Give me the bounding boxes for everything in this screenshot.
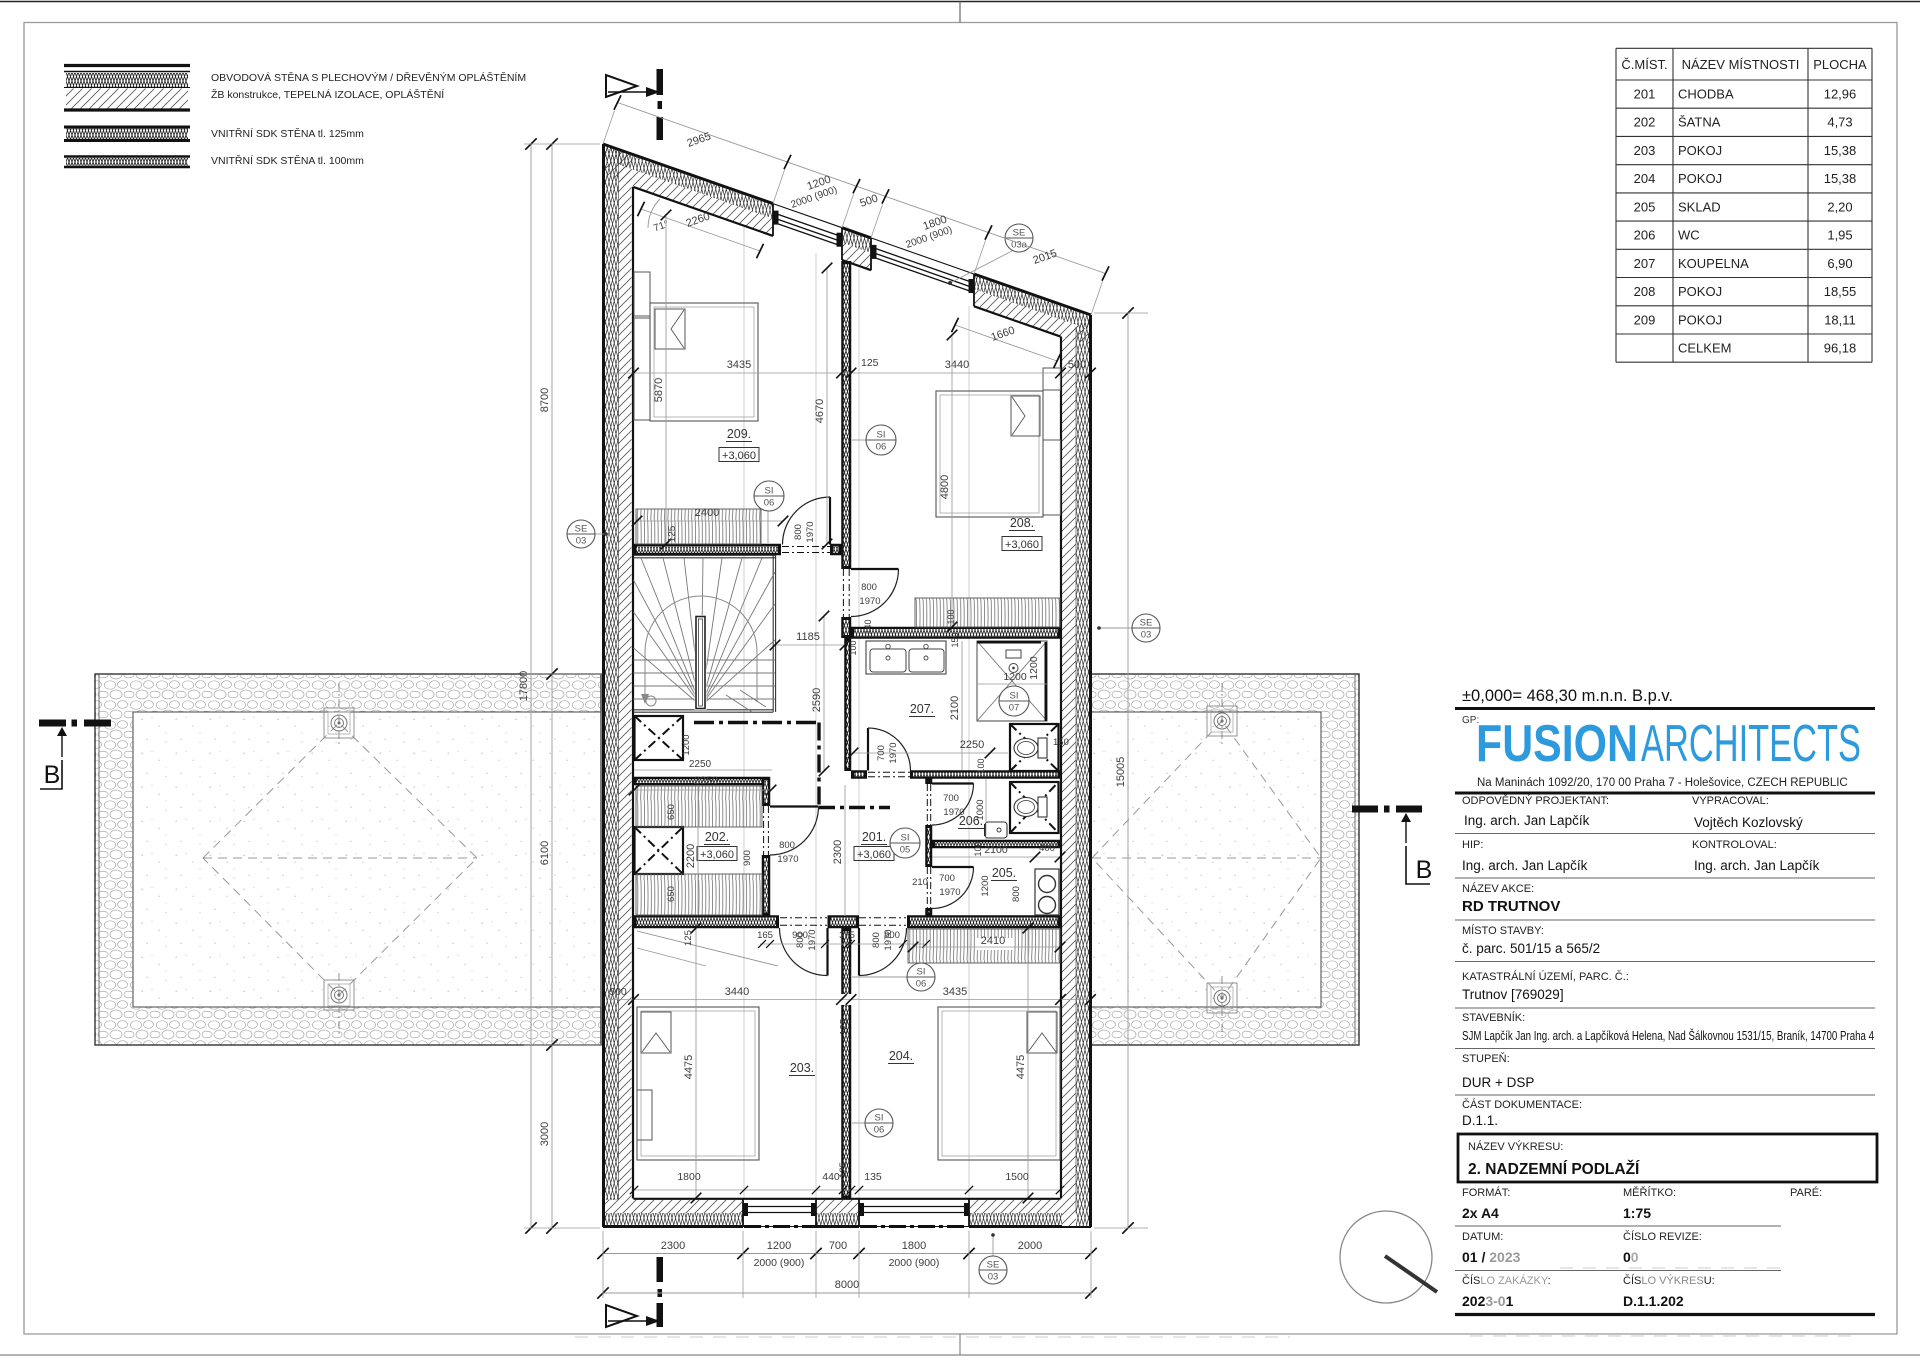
svg-text:SE: SE [575,524,588,535]
svg-text:2023-01: 2023-01 [1462,1293,1514,1309]
svg-text:1200: 1200 [1028,656,1040,680]
svg-text:SJM Lapčík Jan Ing. arch. a La: SJM Lapčík Jan Ing. arch. a Lapčíková He… [1462,1028,1874,1043]
svg-text:05: 05 [900,845,911,856]
svg-text:4800: 4800 [939,475,951,499]
svg-text:MĚŘÍTKO:: MĚŘÍTKO: [1623,1186,1676,1199]
svg-text:PARÉ:: PARÉ: [1790,1186,1822,1199]
svg-text:125: 125 [839,1018,850,1035]
svg-text:700: 700 [876,745,887,761]
svg-text:FORMÁT:: FORMÁT: [1462,1186,1510,1199]
svg-text:+3,060: +3,060 [1005,539,1039,551]
svg-text:1200: 1200 [980,875,991,896]
svg-text:CHODBA: CHODBA [1678,87,1734,102]
svg-text:SI: SI [875,1113,884,1124]
svg-text:8000: 8000 [835,1279,859,1291]
svg-text:1970: 1970 [939,887,960,898]
svg-text:NÁZEV AKCE:: NÁZEV AKCE: [1462,882,1534,895]
svg-text:Vojtěch Kozlovský: Vojtěch Kozlovský [1694,815,1803,830]
svg-text:+3,060: +3,060 [857,849,891,861]
svg-text:Č.MÍST.: Č.MÍST. [1621,57,1667,72]
svg-text:07: 07 [1009,703,1020,714]
svg-text:1000: 1000 [975,799,986,820]
svg-text:800: 800 [1011,886,1022,902]
svg-text:1970: 1970 [883,929,894,950]
svg-text:135: 135 [864,1171,882,1183]
svg-text:150: 150 [950,632,960,647]
svg-text:ODPOVĚDNÝ PROJEKTANT:: ODPOVĚDNÝ PROJEKTANT: [1462,794,1609,807]
svg-text:SI: SI [1010,691,1019,702]
svg-text:206: 206 [1634,228,1656,243]
svg-text:NÁZEV MÍSTNOSTI: NÁZEV MÍSTNOSTI [1682,57,1800,72]
svg-text:1970: 1970 [807,929,818,950]
svg-text:205.: 205. [992,866,1016,880]
svg-text:1800: 1800 [677,1171,701,1183]
svg-text:VNITŘNÍ SDK STĚNA tl. 125mm: VNITŘNÍ SDK STĚNA tl. 125mm [211,127,364,140]
svg-text:3000: 3000 [539,1122,551,1146]
svg-text:03: 03 [1141,630,1152,641]
svg-text:4,73: 4,73 [1827,115,1852,130]
svg-text:POKOJ: POKOJ [1678,171,1722,186]
svg-text:208: 208 [1634,284,1656,299]
svg-text:201: 201 [1634,87,1656,102]
svg-text:150: 150 [1053,737,1069,748]
svg-text:Ing. arch. Jan Lapčík: Ing. arch. Jan Lapčík [1462,858,1588,873]
svg-text:3440: 3440 [945,359,969,371]
svg-text:2300: 2300 [832,840,844,864]
svg-text:SE: SE [987,1260,1000,1271]
svg-text:100: 100 [973,841,983,856]
svg-text:03: 03 [576,536,587,547]
svg-text:1200: 1200 [681,734,692,755]
svg-text:125: 125 [861,357,879,369]
svg-text:DATUM:: DATUM: [1462,1231,1503,1243]
svg-text:3440: 3440 [725,986,749,998]
svg-text:SE: SE [1013,228,1026,239]
svg-text:4670: 4670 [814,399,826,423]
svg-text:1970: 1970 [805,521,816,542]
svg-text:3435: 3435 [943,986,967,998]
svg-text:650: 650 [666,886,677,902]
svg-text:5870: 5870 [653,378,665,402]
svg-text:4475: 4475 [683,1055,695,1079]
svg-text:650: 650 [666,804,677,820]
svg-text:204.: 204. [889,1049,913,1063]
svg-text:125: 125 [667,525,678,542]
svg-text:WC: WC [1678,228,1700,243]
svg-text:STAVEBNÍK:: STAVEBNÍK: [1462,1011,1525,1024]
svg-text:SE: SE [1140,618,1153,629]
svg-text:1970: 1970 [777,854,798,865]
svg-text:HIP:: HIP: [1462,839,1483,851]
svg-text:15,38: 15,38 [1824,171,1857,186]
svg-text:100: 100 [848,640,858,655]
svg-text:100: 100 [976,758,986,773]
svg-text:2000 (900): 2000 (900) [889,1257,940,1269]
svg-text:207.: 207. [910,702,934,716]
svg-text:4475: 4475 [1015,1055,1027,1079]
svg-text:800: 800 [871,932,882,948]
svg-text:00: 00 [1623,1249,1639,1265]
svg-text:ČÁST DOKUMENTACE:: ČÁST DOKUMENTACE: [1462,1098,1582,1111]
svg-text:2400: 2400 [695,507,719,519]
svg-text:D.1.1.: D.1.1. [1462,1113,1498,1128]
svg-text:RD TRUTNOV: RD TRUTNOV [1462,898,1560,915]
svg-text:06: 06 [764,498,775,509]
svg-text:2200: 2200 [685,844,697,868]
svg-text:Ing. arch. Jan Lapčík: Ing. arch. Jan Lapčík [1694,858,1820,873]
svg-text:06: 06 [876,442,887,453]
svg-text:2590: 2590 [811,688,823,712]
svg-text:01 / 2023: 01 / 2023 [1462,1249,1521,1265]
svg-text:140: 140 [863,619,873,634]
svg-text:POKOJ: POKOJ [1678,312,1722,327]
svg-text:2100: 2100 [949,696,961,720]
svg-text:POKOJ: POKOJ [1678,284,1722,299]
svg-text:800: 800 [795,932,806,948]
svg-text:125: 125 [683,930,694,946]
svg-text:ČÍSLO REVIZE:: ČÍSLO REVIZE: [1623,1230,1702,1243]
svg-text:VYPRACOVAL:: VYPRACOVAL: [1692,795,1769,807]
svg-text:8700: 8700 [539,388,551,412]
svg-text:800: 800 [861,582,877,593]
svg-text:SI: SI [917,967,926,978]
svg-text:ČÍSLO VÝKRESU:: ČÍSLO VÝKRESU: [1623,1274,1715,1287]
svg-text:1800: 1800 [902,1240,926,1252]
svg-text:1970: 1970 [943,807,964,818]
svg-text:2100: 2100 [984,844,1008,856]
svg-text:2250: 2250 [694,775,718,787]
svg-text:15005: 15005 [1115,757,1127,788]
svg-text:1:75: 1:75 [1623,1205,1651,1221]
svg-text:800: 800 [779,840,795,851]
svg-text:203.: 203. [790,1061,814,1075]
svg-text:Na Maninách 1092/20, 170 00 Pr: Na Maninách 1092/20, 170 00 Praha 7 - Ho… [1477,777,1848,789]
svg-text:2,20: 2,20 [1827,199,1852,214]
svg-text:ARCHITECTS: ARCHITECTS [1641,715,1861,773]
svg-text:209.: 209. [727,427,751,441]
svg-text:201.: 201. [862,830,886,844]
svg-text:Trutnov [769029]: Trutnov [769029] [1462,987,1564,1002]
svg-text:205: 205 [1634,199,1656,214]
svg-text:č. parc. 501/15 a 565/2: č. parc. 501/15 a 565/2 [1462,941,1600,956]
svg-text:3435: 3435 [727,359,751,371]
svg-text:B: B [1416,856,1433,884]
svg-text:100: 100 [946,609,956,624]
svg-text:D.1.1.202: D.1.1.202 [1623,1293,1684,1309]
svg-text:1,95: 1,95 [1827,228,1852,243]
svg-text:+3,060: +3,060 [722,450,756,462]
svg-text:KONTROLOVAL:: KONTROLOVAL: [1692,839,1777,851]
svg-text:2000: 2000 [1018,1240,1042,1252]
svg-text:OBVODOVÁ STĚNA S PLECHOVÝM / D: OBVODOVÁ STĚNA S PLECHOVÝM / DŘEVĚNÝM OP… [211,71,526,84]
svg-text:2300: 2300 [661,1240,685,1252]
svg-text:2250: 2250 [960,739,984,751]
svg-text:800: 800 [793,524,804,540]
svg-text:Ing. arch. Jan Lapčík: Ing. arch. Jan Lapčík [1464,813,1590,828]
svg-text:207: 207 [1634,256,1656,271]
svg-text:1200: 1200 [1003,671,1027,683]
svg-text:SI: SI [765,486,774,497]
svg-text:ČÍSLO ZAKÁZKY:: ČÍSLO ZAKÁZKY: [1462,1274,1551,1287]
svg-text:209: 209 [1634,312,1656,327]
svg-text:6,90: 6,90 [1827,256,1852,271]
svg-text:700: 700 [943,793,959,804]
svg-text:NÁZEV VÝKRESU:: NÁZEV VÝKRESU: [1468,1140,1563,1153]
svg-text:2x A4: 2x A4 [1462,1205,1499,1221]
svg-text:208.: 208. [1010,516,1034,530]
svg-text:204: 204 [1634,171,1656,186]
svg-text:FUSION: FUSION [1476,715,1638,773]
svg-text:03: 03 [988,1272,999,1283]
svg-text:375: 375 [839,930,855,941]
svg-text:400: 400 [1039,843,1055,854]
svg-text:MÍSTO STAVBY:: MÍSTO STAVBY: [1462,924,1544,937]
svg-text:203: 203 [1634,143,1656,158]
svg-text:+3,060: +3,060 [700,849,734,861]
svg-text:DUR + DSP: DUR + DSP [1462,1075,1534,1090]
svg-text:ŠATNA: ŠATNA [1678,115,1721,130]
svg-text:165: 165 [757,930,773,941]
svg-text:500: 500 [1068,359,1086,371]
svg-text:2. NADZEMNÍ PODLAŽÍ: 2. NADZEMNÍ PODLAŽÍ [1468,1160,1640,1178]
svg-text:PLOCHA: PLOCHA [1813,57,1867,72]
svg-text:17800: 17800 [518,671,530,702]
svg-text:VNITŘNÍ SDK STĚNA tl. 100mm: VNITŘNÍ SDK STĚNA tl. 100mm [211,154,364,167]
svg-text:±0,000= 468,30 m.n.n. B.p.v.: ±0,000= 468,30 m.n.n. B.p.v. [1462,687,1673,705]
svg-text:202: 202 [1634,115,1656,130]
svg-text:POKOJ: POKOJ [1678,143,1722,158]
svg-text:06: 06 [874,1125,885,1136]
svg-text:6100: 6100 [539,841,551,865]
svg-text:210: 210 [912,877,928,888]
svg-text:700: 700 [829,1240,847,1252]
svg-text:700: 700 [939,873,955,884]
svg-text:2410: 2410 [981,935,1005,947]
svg-text:SI: SI [901,833,910,844]
svg-text:18,11: 18,11 [1824,312,1856,327]
svg-text:18,55: 18,55 [1824,284,1857,299]
svg-text:500: 500 [609,986,627,998]
svg-text:SKLAD: SKLAD [1678,199,1721,214]
svg-text:202.: 202. [705,830,729,844]
svg-text:1500: 1500 [1005,1171,1029,1183]
svg-text:KATASTRÁLNÍ ÚZEMÍ, PARC. Č.:: KATASTRÁLNÍ ÚZEMÍ, PARC. Č.: [1462,970,1629,983]
svg-text:96,18: 96,18 [1824,341,1857,356]
svg-text:1200: 1200 [767,1240,791,1252]
svg-text:15,38: 15,38 [1824,143,1857,158]
svg-text:KOUPELNA: KOUPELNA [1678,256,1749,271]
svg-text:2250: 2250 [689,759,712,770]
svg-text:1970: 1970 [859,596,880,607]
svg-text:1185: 1185 [796,631,820,643]
svg-text:2000 (900): 2000 (900) [754,1257,805,1269]
svg-text:ŽB konstrukce, TEPELNÁ IZOLACE: ŽB konstrukce, TEPELNÁ IZOLACE, OPLÁŠTĚN… [211,88,444,101]
svg-text:B: B [44,761,61,789]
svg-text:12,96: 12,96 [1824,87,1857,102]
svg-text:125: 125 [838,1162,849,1178]
svg-text:1970: 1970 [888,742,899,763]
svg-text:06: 06 [916,979,927,990]
svg-text:STUPEŇ:: STUPEŇ: [1462,1052,1510,1065]
svg-text:CELKEM: CELKEM [1678,341,1731,356]
svg-text:900: 900 [742,850,753,866]
svg-text:SI: SI [877,430,886,441]
